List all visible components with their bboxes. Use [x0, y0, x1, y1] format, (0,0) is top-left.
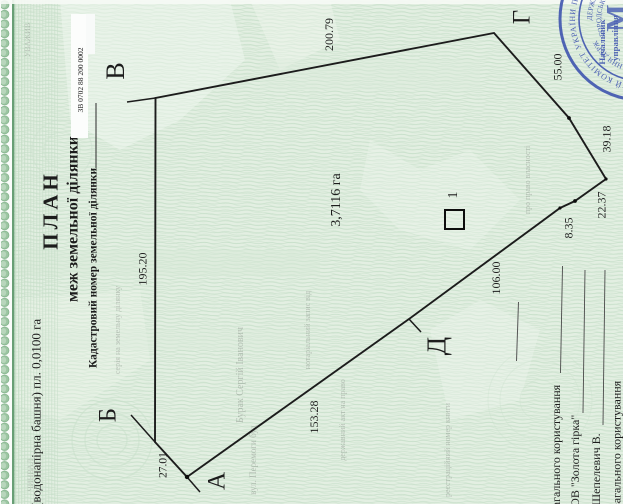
svg-text:А: А	[204, 472, 231, 490]
svg-text:1: 1	[446, 192, 461, 199]
svg-text:вул. Перемоги буд: вул. Перемоги буд	[248, 425, 258, 495]
svg-text:Кадастровий номер земельної ді: Кадастровий номер земельної ділянки	[88, 167, 100, 368]
svg-text:нотаріальний запис від: нотаріальний запис від	[303, 291, 312, 369]
svg-text:39.18: 39.18	[600, 126, 614, 153]
svg-text:. Шепелевич В.: . Шепелевич В.	[589, 433, 603, 504]
svg-text:В: В	[101, 62, 130, 79]
svg-text:реєстраційний номер книги: реєстраційний номер книги	[443, 402, 452, 497]
svg-text:153.28: 153.28	[307, 401, 321, 434]
svg-text:а (водонапірна башня) пл. 0,01: а (водонапірна башня) пл. 0,0100 га	[29, 319, 44, 504]
svg-text:ТОВ "Золота гірка": ТОВ "Золота гірка"	[568, 415, 582, 504]
svg-text:Г: Г	[509, 10, 536, 24]
svg-text:загального користування: загального користування	[549, 384, 563, 504]
svg-text:200.79: 200.79	[322, 18, 336, 51]
svg-text:державний акт на право: державний акт на право	[338, 379, 347, 461]
svg-text:серія на земельну ділянку: серія на земельну ділянку	[113, 286, 122, 374]
svg-text:загального користування: загального користування	[610, 380, 623, 504]
svg-text:3В 0702 88 200 0002: 3В 0702 88 200 0002	[76, 47, 85, 112]
svg-text:Б: Б	[95, 408, 122, 422]
svg-text:меж земельної ділянки: меж земельної ділянки	[65, 136, 82, 302]
svg-text:Бурак Сергій Іванович: Бурак Сергій Іванович	[235, 327, 246, 423]
svg-text:8.35: 8.35	[562, 218, 576, 239]
svg-text:27.01: 27.01	[158, 452, 170, 478]
svg-text:3,7116 га: 3,7116 га	[329, 172, 344, 226]
svg-text:ПЛАН: ПЛАН	[39, 170, 63, 249]
svg-text:55.00: 55.00	[551, 54, 565, 81]
svg-text:22.37: 22.37	[595, 192, 609, 219]
svg-text:Д: Д	[422, 337, 452, 355]
svg-text:195.20: 195.20	[136, 253, 150, 286]
svg-text:106.00: 106.00	[489, 262, 503, 295]
svg-text:про право власності: про право власності	[523, 145, 532, 214]
svg-text:М: М	[601, 4, 623, 31]
